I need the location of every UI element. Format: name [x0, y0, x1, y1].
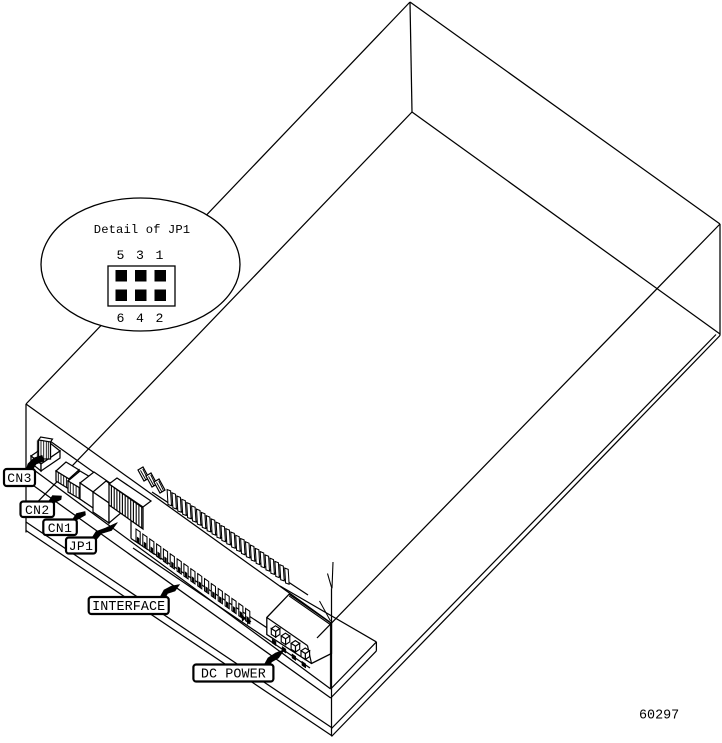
- svg-text:3: 3: [136, 248, 144, 263]
- svg-text:CN3: CN3: [7, 471, 32, 486]
- svg-text:CN1: CN1: [48, 521, 73, 536]
- svg-text:5: 5: [117, 248, 125, 263]
- svg-text:DC POWER: DC POWER: [201, 668, 266, 683]
- svg-text:4: 4: [136, 311, 144, 326]
- svg-text:60297: 60297: [639, 709, 679, 724]
- svg-text:1: 1: [156, 248, 164, 263]
- svg-text:6: 6: [117, 311, 125, 326]
- svg-text:INTERFACE: INTERFACE: [92, 600, 165, 615]
- svg-text:2: 2: [156, 311, 164, 326]
- svg-text:Detail of JP1: Detail of JP1: [94, 223, 190, 237]
- svg-text:CN2: CN2: [25, 503, 50, 518]
- svg-text:JP1: JP1: [69, 539, 94, 554]
